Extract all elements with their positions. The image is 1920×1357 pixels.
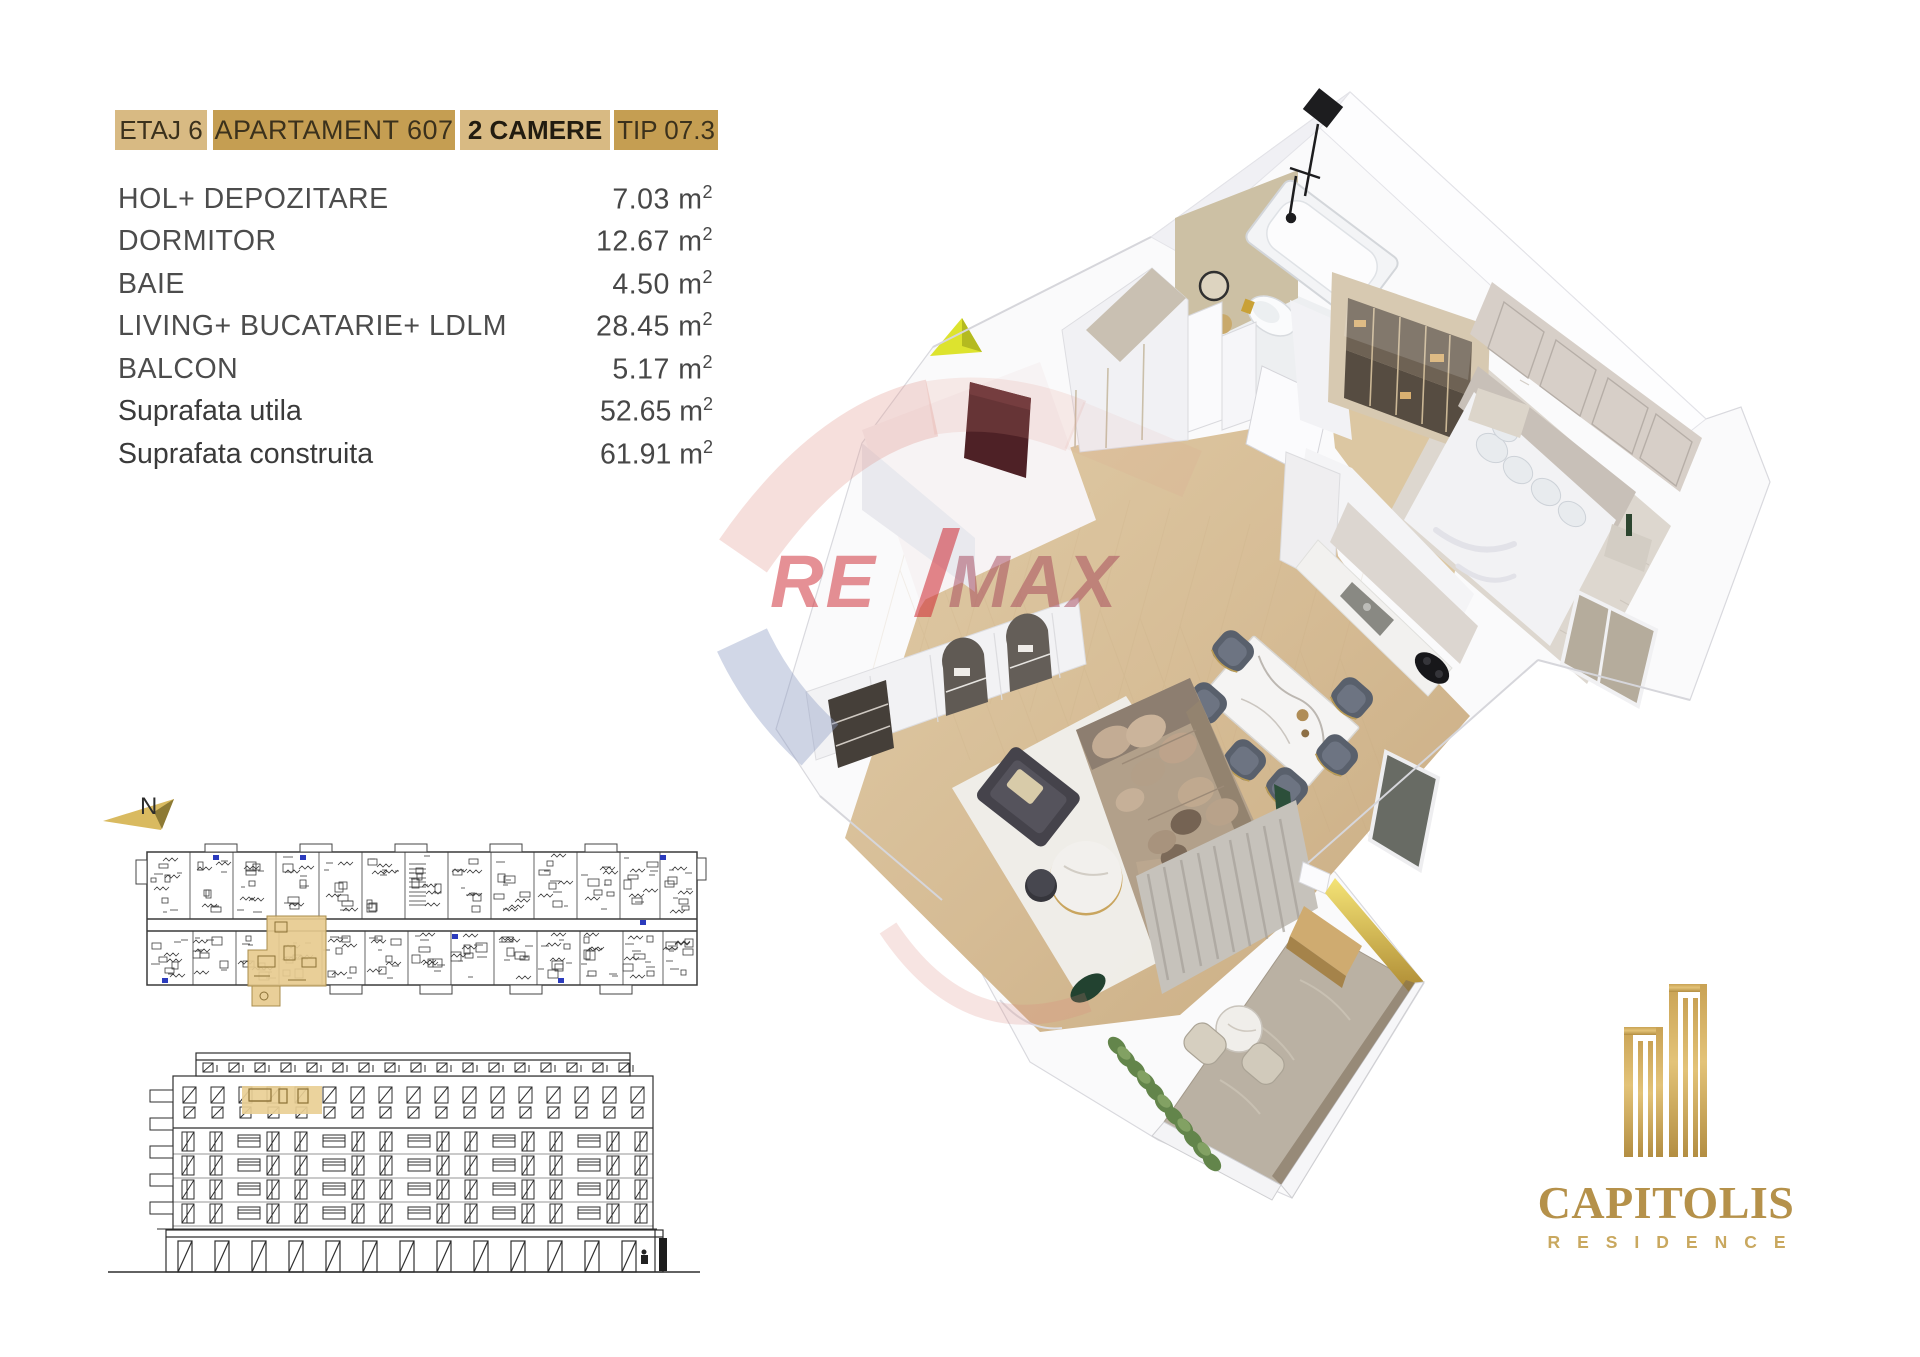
svg-text:RE: RE: [770, 540, 877, 623]
svg-text:N: N: [140, 793, 157, 820]
svg-text:CAPITOLIS: CAPITOLIS: [1538, 1177, 1795, 1228]
svg-text:RESIDENCE: RESIDENCE: [1547, 1232, 1802, 1252]
svg-text:MAX: MAX: [948, 540, 1121, 623]
